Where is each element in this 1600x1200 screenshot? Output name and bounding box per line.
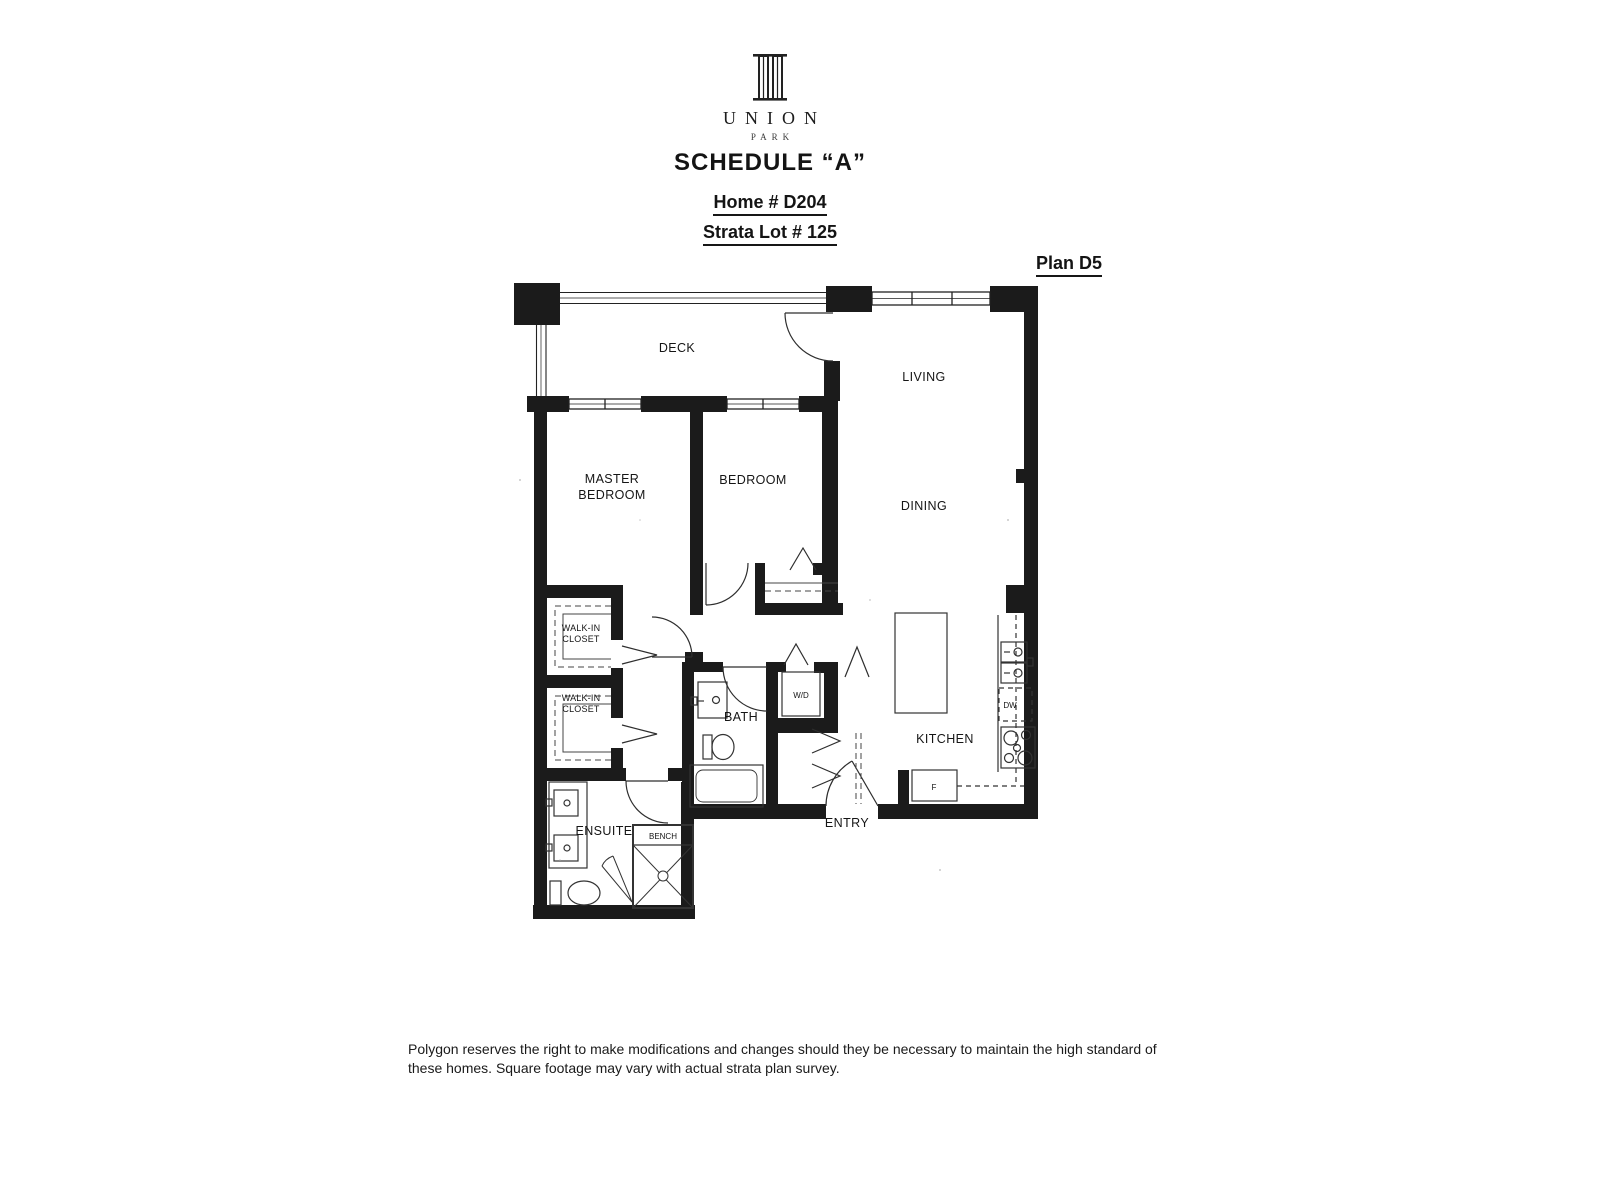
- room-label-living: LIVING: [902, 370, 945, 384]
- bathtub: [690, 765, 763, 807]
- union-park-logo-icon: [750, 54, 790, 104]
- bath-door: [723, 667, 767, 711]
- room-label-walk-in-closet: CLOSET: [562, 704, 600, 714]
- scanned-floor-plan-sheet: UNION PARK SCHEDULE “A” Home # D204 Stra…: [0, 0, 1600, 1200]
- shower-door-indicator: [602, 856, 632, 902]
- room-label-master-bedroom: MASTER: [585, 472, 640, 486]
- brand-subtitle: PARK: [475, 132, 1070, 142]
- fixture-label-bench: BENCH: [649, 832, 677, 841]
- ensuite-fixtures: [546, 782, 693, 908]
- home-number: Home # D204: [470, 192, 1070, 216]
- floor-plan: DECK LIVING DINING MASTER BEDROOM BEDROO…: [500, 260, 1060, 940]
- room-label-bedroom: BEDROOM: [719, 473, 786, 487]
- disclaimer-line: Polygon reserves the right to make modif…: [408, 1040, 1188, 1059]
- room-label-deck: DECK: [659, 341, 696, 355]
- windows-and-railings: [537, 292, 991, 409]
- strata-lot-number: Strata Lot # 125: [470, 222, 1070, 246]
- room-label-bath: BATH: [724, 710, 758, 724]
- fixture-label-washer-dryer: W/D: [793, 691, 809, 700]
- schedule-title: SCHEDULE “A”: [470, 149, 1070, 177]
- fixture-label-fridge: F: [932, 783, 937, 792]
- room-label-entry: ENTRY: [825, 816, 869, 830]
- ensuite-sink: [546, 790, 578, 816]
- brand-header: UNION PARK: [470, 54, 1070, 142]
- master-bedroom-door: [652, 617, 692, 657]
- bath-sink: [691, 682, 727, 718]
- kitchen-island: [895, 613, 947, 713]
- room-label-kitchen: KITCHEN: [916, 732, 974, 746]
- ensuite-sink: [546, 835, 578, 861]
- room-label-ensuite: ENSUITE: [576, 824, 633, 838]
- fixture-label-dishwasher: DW: [1003, 701, 1017, 710]
- disclaimer: Polygon reserves the right to make modif…: [408, 1040, 1188, 1078]
- room-label-walk-in-closet: CLOSET: [562, 634, 600, 644]
- room-label-walk-in-closet: WALK-IN: [562, 693, 601, 703]
- room-label-walk-in-closet: WALK-IN: [562, 623, 601, 633]
- room-label-master-bedroom: BEDROOM: [578, 488, 645, 502]
- brand-name: UNION: [479, 108, 1070, 129]
- room-label-dining: DINING: [901, 499, 947, 513]
- disclaimer-line: these homes. Square footage may vary wit…: [408, 1059, 1188, 1078]
- deck-door: [785, 313, 833, 361]
- ensuite-door: [626, 781, 668, 823]
- ensuite-toilet: [550, 881, 600, 905]
- deck-post: [514, 283, 560, 325]
- bath-toilet: [703, 735, 734, 760]
- entry-door: [826, 761, 878, 806]
- bedroom-door: [706, 563, 748, 605]
